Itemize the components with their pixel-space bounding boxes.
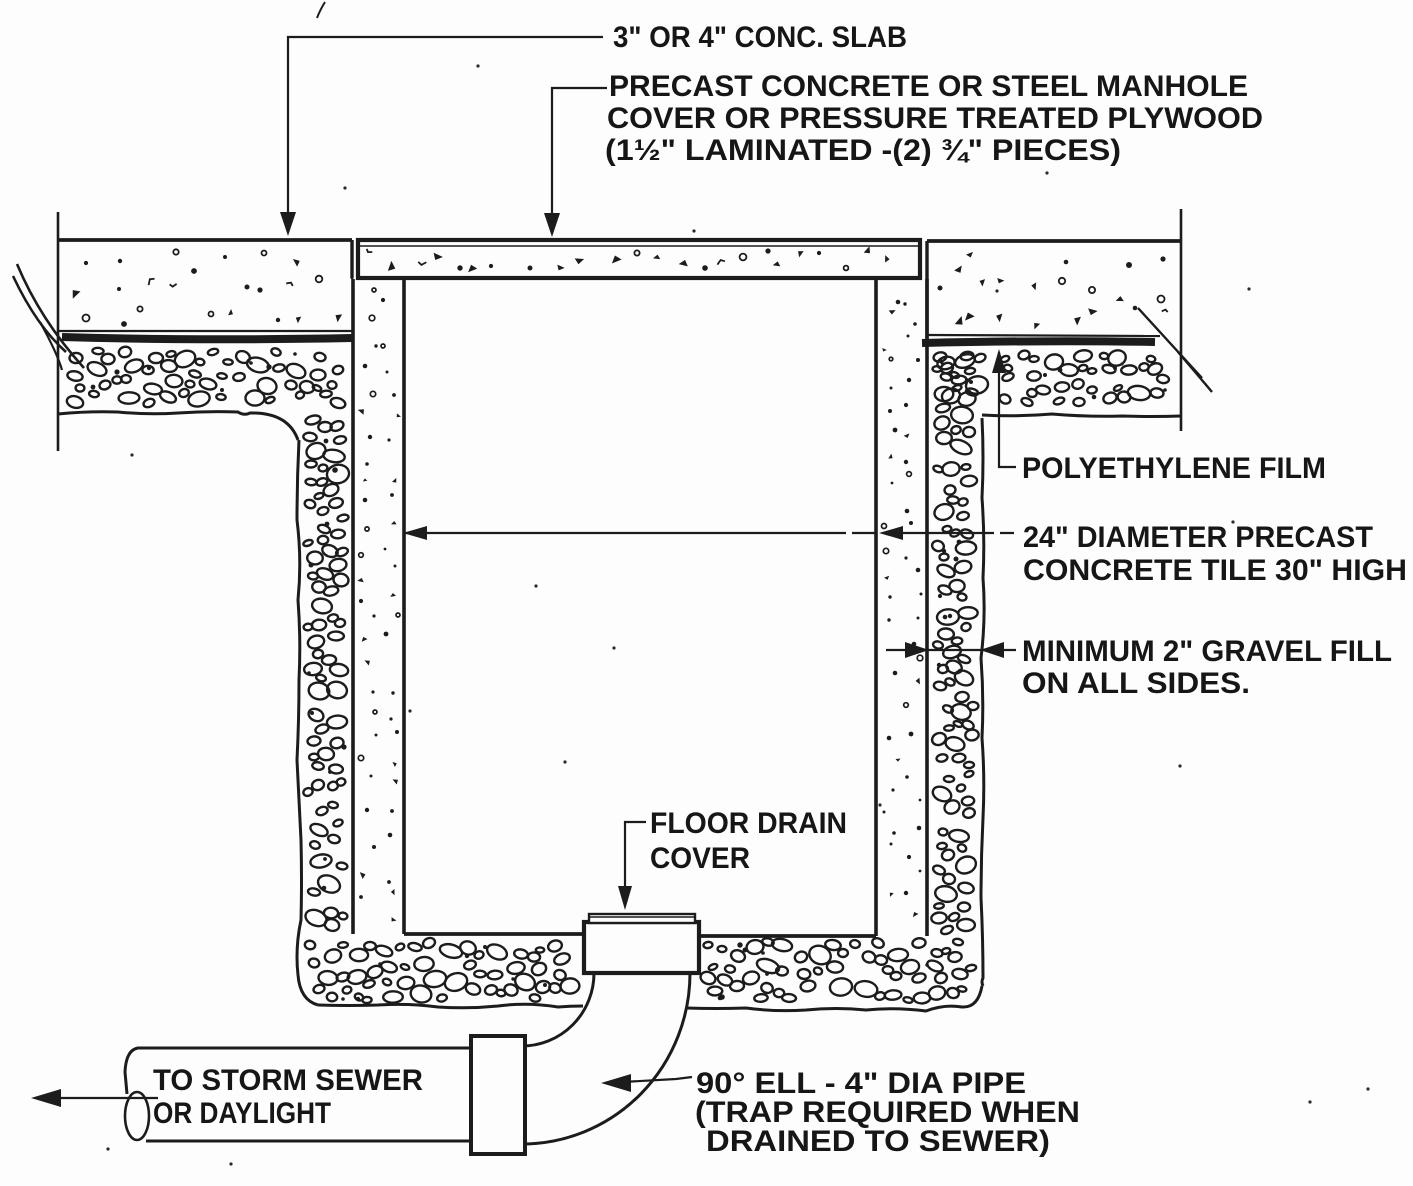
svg-text:OR DAYLIGHT: OR DAYLIGHT [153,1097,331,1130]
svg-text:3" OR 4" CONC. SLAB: 3" OR 4" CONC. SLAB [613,21,907,54]
svg-text:TO STORM SEWER: TO STORM SEWER [153,1064,423,1097]
svg-text:(1½" LAMINATED -(2) ¾" PIECES): (1½" LAMINATED -(2) ¾" PIECES) [605,134,1121,167]
svg-text:COVER: COVER [650,842,750,875]
svg-text:24" DIAMETER PRECAST: 24" DIAMETER PRECAST [1023,521,1373,554]
svg-text:ON ALL SIDES.: ON ALL SIDES. [1022,667,1250,700]
svg-text:FLOOR DRAIN: FLOOR DRAIN [650,807,847,840]
svg-text:CONCRETE TILE 30" HIGH: CONCRETE TILE 30" HIGH [1023,554,1407,587]
svg-text:DRAINED TO SEWER): DRAINED TO SEWER) [706,1125,1050,1158]
svg-text:PRECAST CONCRETE OR STEEL MANH: PRECAST CONCRETE OR STEEL MANHOLE [609,70,1248,103]
svg-text:POLYETHYLENE FILM: POLYETHYLENE FILM [1022,452,1326,485]
svg-text:MINIMUM 2" GRAVEL FILL: MINIMUM 2" GRAVEL FILL [1022,635,1392,668]
svg-text:COVER OR PRESSURE TREATED PLYW: COVER OR PRESSURE TREATED PLYWOOD [607,102,1263,135]
